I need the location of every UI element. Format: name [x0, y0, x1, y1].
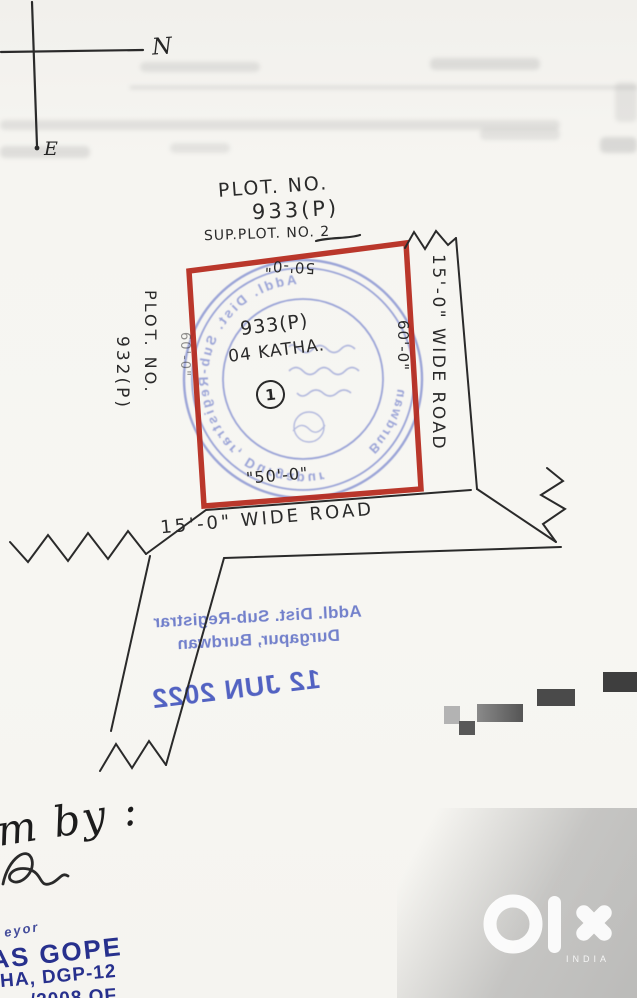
ghost-smudge — [600, 137, 637, 153]
compass-horizontal-axis — [1, 50, 143, 52]
svg-text:Burdwan: Burdwan — [366, 387, 410, 457]
redaction-block — [477, 704, 523, 722]
scanned-plot-map-document: Addl. Dist. Sub-Registrar, Durgapur Burd… — [0, 0, 637, 998]
right-road-label: 15'-0" WIDE ROAD — [428, 254, 448, 451]
adjacent-plot-label: PLOT. NO. — [141, 290, 160, 395]
plot-no-value: 933(P) — [251, 196, 339, 225]
compass-north-label: N — [151, 33, 173, 60]
zigzag-bottom-left — [100, 741, 166, 771]
seal-bottom-text: Burdwan — [366, 387, 410, 457]
redaction-block — [537, 689, 575, 706]
office-stamp: Addl. Dist. Sub-Registrar Durgapur, Burd… — [147, 600, 369, 657]
zigzag-left — [10, 531, 146, 562]
bottom-road-label: 15'-0" WIDE ROAD — [159, 499, 374, 539]
surveyor-stamp-partial-line: eyor — [3, 919, 41, 940]
ghost-smudge — [615, 82, 637, 122]
svg-text:Addl. Dist. Sub-Registrar, Dur: Addl. Dist. Sub-Registrar, Durgapur — [196, 272, 328, 486]
ghost-smudge — [170, 143, 230, 153]
compass-east-label: E — [44, 138, 58, 160]
dimension-right: 60'-0" — [394, 320, 412, 371]
dimension-left: 60'-0" — [177, 332, 192, 377]
zigzag-top-right — [405, 231, 456, 249]
sub-plot-no: SUP.PLOT. NO. 2 — [204, 224, 331, 244]
lower-road-left-edge — [111, 556, 150, 731]
watermark-shade — [397, 808, 637, 998]
ghost-smudge — [480, 128, 560, 140]
round-seal-stamp: Addl. Dist. Sub-Registrar, Durgapur Burd… — [160, 238, 450, 528]
seal-inner-script — [289, 345, 359, 442]
signature-scribble — [3, 854, 68, 885]
dimension-bottom: "50'-0" — [245, 463, 309, 487]
redaction-block — [603, 672, 637, 692]
drawn-by-handwriting: m by : — [0, 785, 142, 856]
site-marker-number: 1 — [264, 385, 276, 404]
ghost-smudge — [430, 58, 540, 70]
ghost-text-row — [0, 120, 560, 130]
redaction-block — [444, 706, 460, 724]
site-plot-no: 933(P) — [239, 310, 310, 340]
adjacent-plot-value: 932(P) — [112, 336, 132, 410]
zigzag-right — [541, 468, 565, 542]
lower-road-right-edge — [166, 558, 224, 765]
redaction-block — [459, 721, 475, 735]
office-stamp-date: 12 JUN 2022 — [145, 663, 327, 716]
bottom-road-bottom-edge — [224, 547, 561, 558]
right-road-line — [456, 238, 477, 489]
dimension-top: 50'-0" — [264, 257, 316, 278]
site-marker-circled-1: 1 — [255, 379, 287, 411]
seal-ring-text: Addl. Dist. Sub-Registrar, Durgapur — [196, 272, 328, 486]
ghost-rule-line — [130, 86, 637, 89]
ghost-smudge — [140, 62, 260, 72]
right-road-diagonal — [477, 489, 556, 542]
